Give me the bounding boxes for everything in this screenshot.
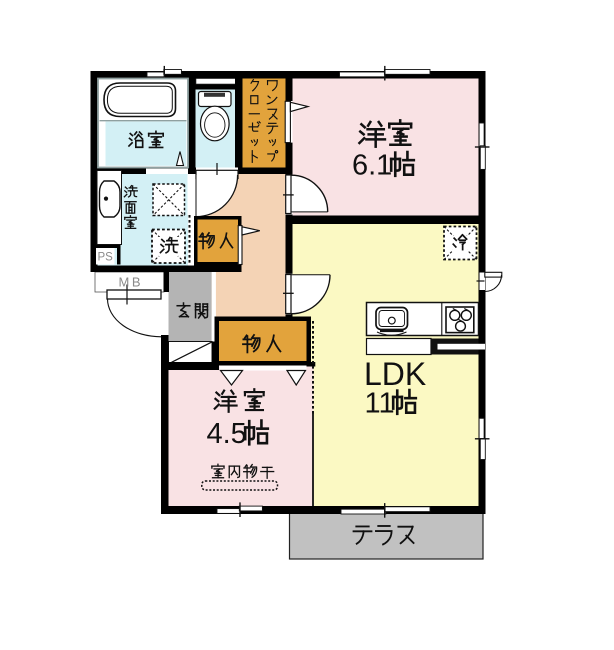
svg-text:PS: PS (98, 252, 114, 264)
svg-text:4.5: 4.5 (207, 418, 247, 450)
svg-text:6.1: 6.1 (352, 150, 392, 182)
svg-text:MB: MB (119, 275, 144, 290)
svg-text:11: 11 (365, 388, 395, 420)
